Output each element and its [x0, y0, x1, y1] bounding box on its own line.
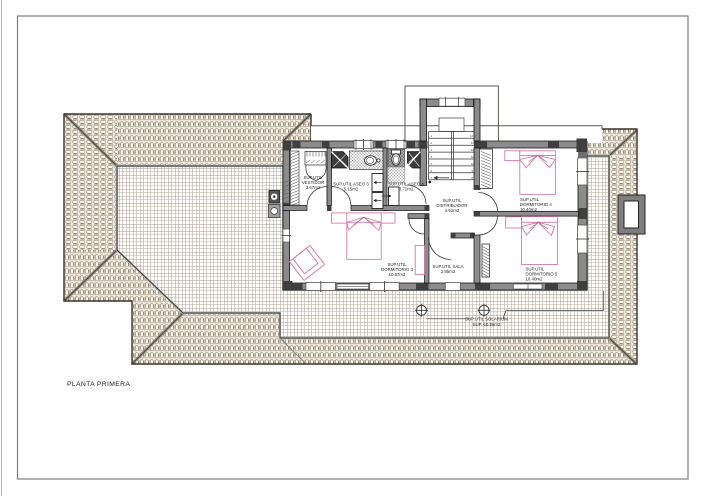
svg-text:10.40m2: 10.40m2	[526, 277, 543, 282]
svg-text:10.57m2: 10.57m2	[389, 272, 406, 277]
svg-text:3.71m2: 3.71m2	[399, 187, 414, 192]
svg-text:3.67m2: 3.67m2	[306, 185, 321, 190]
svg-text:5.15m2: 5.15m2	[344, 187, 359, 192]
svg-text:4.52m2: 4.52m2	[445, 208, 460, 213]
svg-text:10.40m2: 10.40m2	[520, 207, 537, 212]
svg-text:2.85m2: 2.85m2	[441, 269, 456, 274]
svg-text:SUP. 60.26m2: SUP. 60.26m2	[473, 322, 501, 327]
svg-text:SUP.UTIL SOLARIUM: SUP.UTIL SOLARIUM	[465, 316, 508, 321]
svg-text:PLANTA PRIMERA: PLANTA PRIMERA	[67, 381, 130, 388]
